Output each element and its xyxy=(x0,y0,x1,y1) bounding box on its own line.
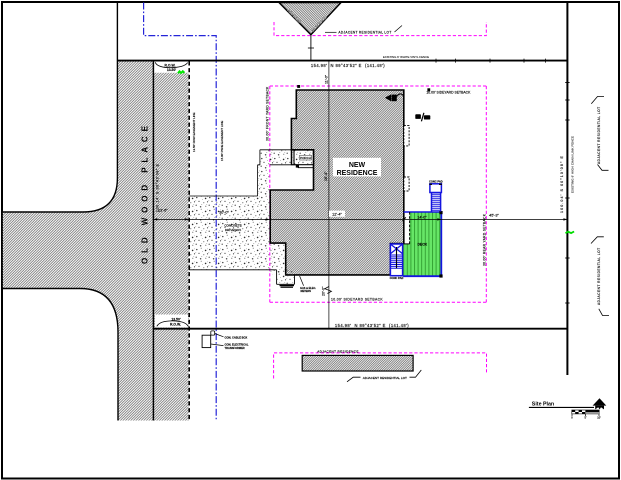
svg-text:PORCH: PORCH xyxy=(300,156,311,160)
svg-text:16'-4": 16'-4" xyxy=(324,171,328,181)
svg-text:30.00' FRONT YARD SETBACK: 30.00' FRONT YARD SETBACK xyxy=(265,86,269,141)
svg-text:ADJACENT RESIDENTIAL LOT: ADJACENT RESIDENTIAL LOT xyxy=(363,376,407,380)
svg-text:NEW: NEW xyxy=(349,162,366,169)
svg-text:ADJACENT RESIDENTIAL LOT: ADJACENT RESIDENTIAL LOT xyxy=(597,247,601,305)
svg-text:TRANSFORMER: TRANSFORMER xyxy=(225,346,245,350)
svg-text:Site Plan: Site Plan xyxy=(532,401,554,407)
svg-text:20'-0": 20'-0" xyxy=(322,286,326,296)
svg-text:13.50' ROW EASEMENT LINE: 13.50' ROW EASEMENT LINE xyxy=(192,112,196,152)
svg-text:EXISTING 6' WHITE VINYL FE: EXISTING 6' WHITE VINYL FENCE xyxy=(383,55,429,59)
svg-text:14'-0": 14'-0" xyxy=(417,215,427,219)
svg-text:RESIDENCE: RESIDENCE xyxy=(337,170,378,177)
svg-text:R.O.W.: R.O.W. xyxy=(170,323,181,327)
svg-text:CONC PAD: CONC PAD xyxy=(390,276,404,280)
svg-text:100.04' S 00°10'08" E: 100.04' S 00°10'08" E xyxy=(560,155,564,213)
svg-text:ADJACENT RESIDENCE: ADJACENT RESIDENCE xyxy=(317,349,358,353)
svg-text:DRIVEWAY: DRIVEWAY xyxy=(225,228,241,232)
svg-text:154.98' N 89°43'52" E (141.4: 154.98' N 89°43'52" E (141.48') xyxy=(335,323,409,328)
svg-text:30'-0": 30'-0" xyxy=(219,211,229,215)
svg-text:OLD WOOD PLACE: OLD WOOD PLACE xyxy=(141,121,150,264)
svg-text:CONC PAD: CONC PAD xyxy=(429,180,443,184)
svg-text:EXISTING 6' HIGH CHAIN LINK FE: EXISTING 6' HIGH CHAIN LINK FENCE xyxy=(571,136,575,193)
svg-text:12'-4": 12'-4" xyxy=(332,213,342,217)
svg-text:100.14' S 00°49'08" E: 100.14' S 00°49'08" E xyxy=(155,163,159,212)
svg-text:R.O.W.: R.O.W. xyxy=(165,63,176,67)
svg-text:ADJACENT RESIDENTIAL LOT: ADJACENT RESIDENTIAL LOT xyxy=(338,31,391,35)
svg-text:30.00' REAR YARD SETBACK: 30.00' REAR YARD SETBACK xyxy=(483,213,487,266)
svg-text:154.98' N 89°43'52" E (141.4: 154.98' N 89°43'52" E (141.48') xyxy=(311,63,385,68)
svg-text:10': 10' xyxy=(597,416,601,420)
svg-text:ADJACENT RESIDENTIAL LOT: ADJACENT RESIDENTIAL LOT xyxy=(597,106,601,164)
svg-text:15.00' PSNE EASEMENT LINE: 15.00' PSNE EASEMENT LINE xyxy=(220,121,224,161)
svg-text:METERS: METERS xyxy=(301,290,312,293)
svg-text:45'-3": 45'-3" xyxy=(489,213,499,217)
svg-text:DECK: DECK xyxy=(417,243,427,247)
svg-text:10.00' SIDEYARD SETBACK: 10.00' SIDEYARD SETBACK xyxy=(331,298,383,302)
svg-text:11'-0": 11'-0" xyxy=(325,74,329,84)
svg-text:13.50': 13.50' xyxy=(167,68,176,72)
svg-text:13'-6": 13'-6" xyxy=(158,209,168,213)
svg-text:COM. CABLE BOX: COM. CABLE BOX xyxy=(225,335,248,339)
svg-text:10.00' SIDEYARD SETBACK: 10.00' SIDEYARD SETBACK xyxy=(426,90,471,94)
